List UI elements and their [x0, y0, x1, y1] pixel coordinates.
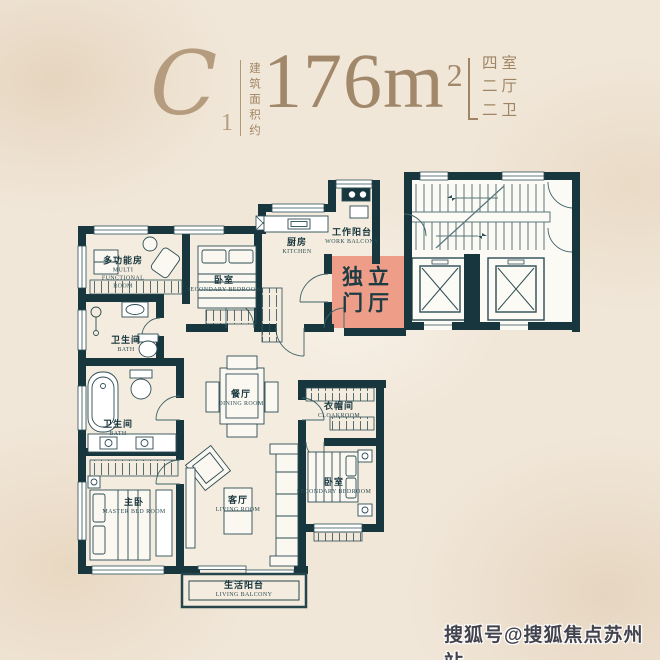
- bed-icon: [198, 246, 256, 308]
- watermark: 搜狐号@搜狐焦点苏州站: [444, 620, 660, 660]
- toilet-icon: [130, 370, 152, 378]
- entrance-hall-label: 独立 门厅: [342, 265, 394, 318]
- tv-bench-icon: [186, 468, 195, 548]
- floor-plan-page: C 1 建筑面积约 176m2 四室 二厅 二卫: [0, 0, 660, 660]
- bathtub-icon: [88, 372, 118, 432]
- floor-plan-drawing: [0, 0, 660, 660]
- chair-icon: [143, 237, 157, 251]
- kitchen-counter-icon: [264, 216, 328, 232]
